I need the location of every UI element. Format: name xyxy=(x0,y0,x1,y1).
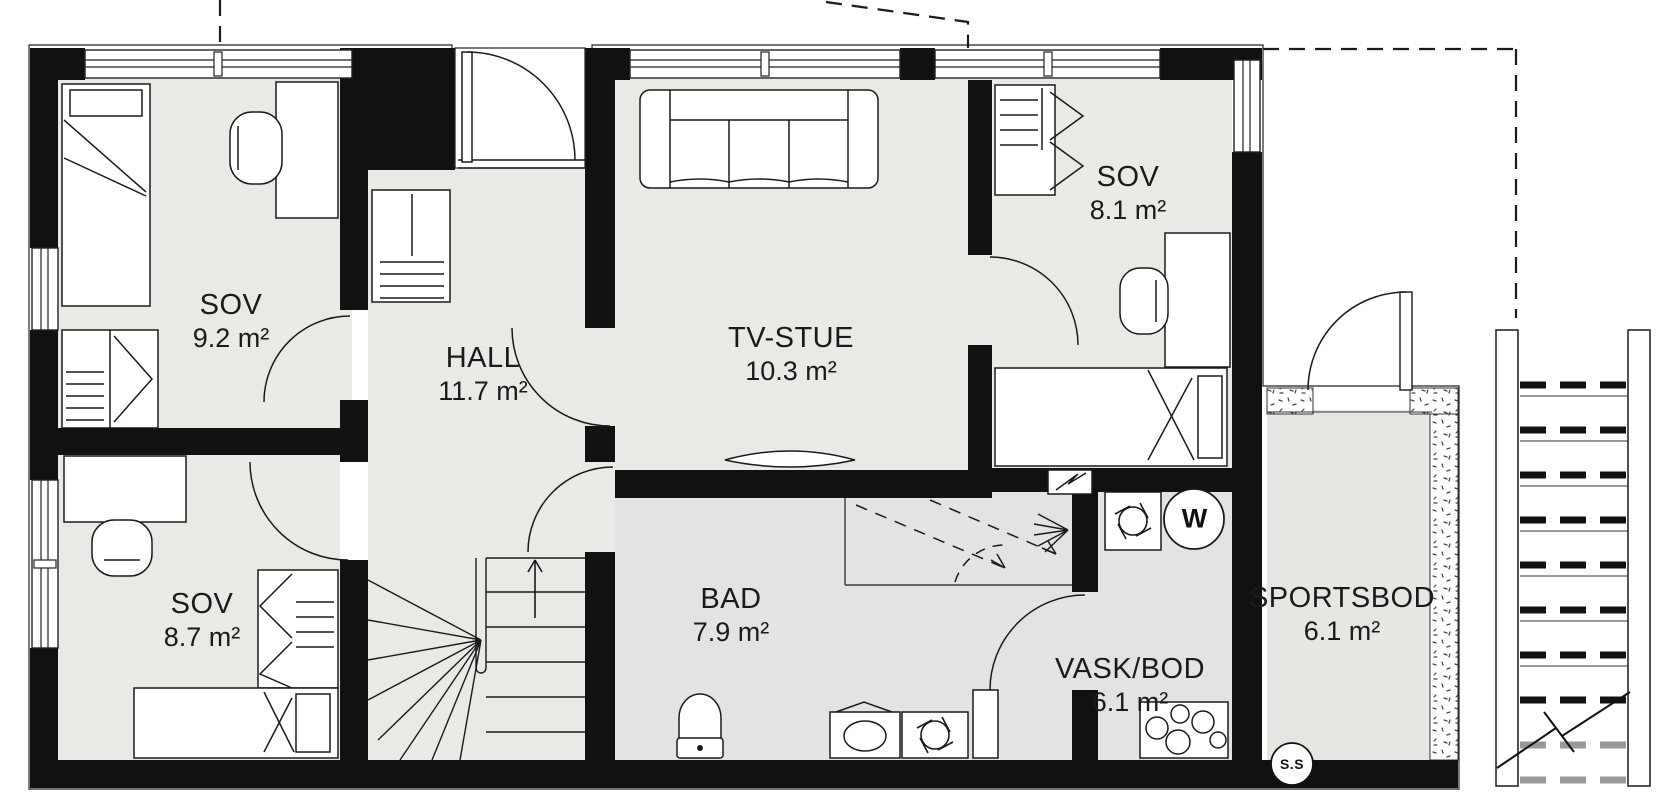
floor-drain-label: S.S xyxy=(1280,756,1304,772)
hall-closet-icon xyxy=(372,190,450,302)
room-area: 6.1 m² xyxy=(1249,615,1435,648)
room-name: TV-STUE xyxy=(728,322,854,355)
room-name: SOV xyxy=(164,588,241,621)
exterior-stair-icon xyxy=(1496,330,1650,786)
room-area: 6.1 m² xyxy=(1055,686,1205,719)
bed-icon xyxy=(995,368,1227,466)
sofa-icon xyxy=(640,90,878,188)
water-heater-label: W xyxy=(1182,504,1206,535)
window-sov-1-left xyxy=(32,248,58,330)
wardrobe-icon xyxy=(258,570,338,688)
entry-door xyxy=(455,48,585,168)
room-label-bad: BAD 7.9 m² xyxy=(693,583,770,649)
window-sov-2-right xyxy=(1234,60,1260,152)
desk-icon xyxy=(276,82,338,218)
room-area: 8.7 m² xyxy=(164,621,241,654)
sportsbod-right-wall xyxy=(1430,388,1458,760)
electrical-panel-icon xyxy=(1048,470,1092,494)
room-label-sportsbod: SPORTSBOD 6.1 m² xyxy=(1249,582,1435,648)
bed-icon xyxy=(62,84,150,306)
room-label-vask-bod: VASK/BOD 6.1 m² xyxy=(1055,653,1205,719)
desk-icon xyxy=(1165,233,1230,367)
room-label-tv-stue: TV-STUE 10.3 m² xyxy=(728,322,854,388)
window-tv-stue-top xyxy=(630,50,900,78)
room-name: HALL xyxy=(438,342,528,375)
floor-plan: SOV 9.2 m² HALL 11.7 m² TV-STUE 10.3 m² … xyxy=(0,0,1670,800)
sportsbod-top-wall-left xyxy=(1267,388,1313,414)
room-label-sov-1: SOV 9.2 m² xyxy=(193,289,270,355)
dash-line-overhang xyxy=(1263,49,1516,318)
window-sov-1-top xyxy=(85,50,352,78)
sportsbod-top-wall-right xyxy=(1410,388,1458,414)
room-name: SPORTSBOD xyxy=(1249,582,1435,615)
washing-machine-icon xyxy=(1105,492,1161,550)
room-area: 8.1 m² xyxy=(1090,194,1167,227)
room-area: 11.7 m² xyxy=(438,375,528,408)
room-name: BAD xyxy=(693,583,770,616)
window-sov-3-left xyxy=(32,480,58,648)
chair-icon xyxy=(92,520,152,576)
washing-machine-icon xyxy=(902,712,968,758)
floor-plan-drawing xyxy=(0,0,1670,800)
room-label-sov-3: SOV 8.7 m² xyxy=(164,588,241,654)
chair-icon xyxy=(230,112,282,184)
bed-icon xyxy=(134,688,338,758)
toilet-icon xyxy=(677,694,723,758)
desk-icon xyxy=(64,456,186,522)
room-label-hall: HALL 11.7 m² xyxy=(438,342,528,408)
room-label-sov-2: SOV 8.1 m² xyxy=(1090,161,1167,227)
cabinet-icon xyxy=(973,690,998,758)
chair-icon xyxy=(1120,268,1168,334)
door-arc-sportsbod xyxy=(1308,292,1406,390)
stair-hidden-treads xyxy=(1520,745,1628,780)
wardrobe-icon xyxy=(62,330,158,428)
room-name: VASK/BOD xyxy=(1055,653,1205,686)
room-area: 7.9 m² xyxy=(693,616,770,649)
window-sov-2-top xyxy=(935,50,1160,78)
room-name: SOV xyxy=(193,289,270,322)
dash-line-center xyxy=(826,2,968,48)
room-name: SOV xyxy=(1090,161,1167,194)
room-area: 9.2 m² xyxy=(193,322,270,355)
room-area: 10.3 m² xyxy=(728,355,854,388)
